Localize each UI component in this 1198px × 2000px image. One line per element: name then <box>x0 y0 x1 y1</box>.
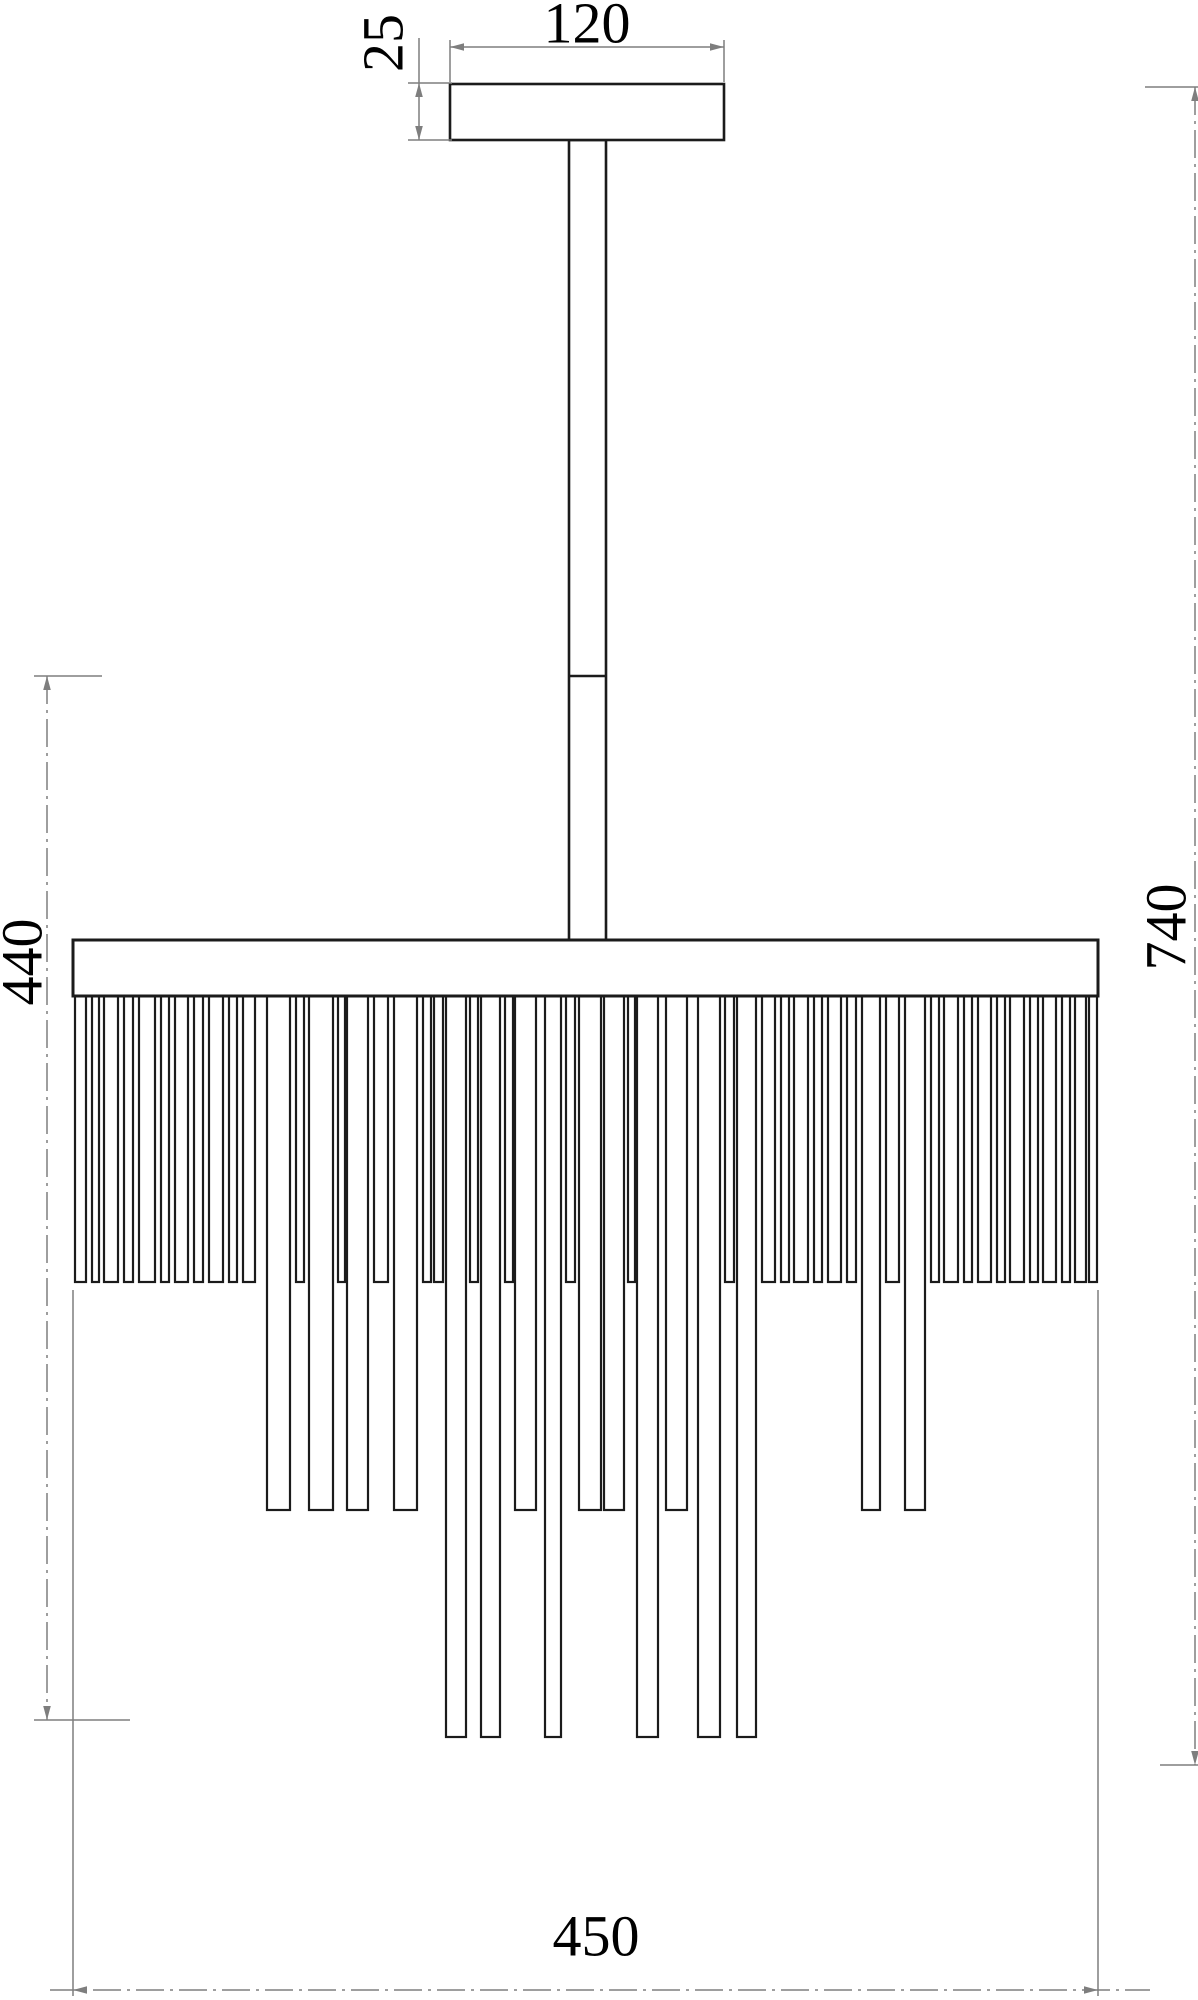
crystal-rod-tier1 <box>229 992 237 1282</box>
dim-25-arrow-1 <box>415 126 423 140</box>
crystal-rod-tier1 <box>296 992 304 1282</box>
dim-450-arrow-0 <box>73 1986 87 1994</box>
hanging-rod <box>569 140 606 940</box>
frame-plate <box>73 940 1098 996</box>
dim-440-arrow-0 <box>43 676 51 690</box>
dim-740-label: 740 <box>1134 884 1198 971</box>
crystal-rod-tier2 <box>579 992 601 1510</box>
crystal-rod-tier1 <box>781 992 789 1282</box>
dim-120-arrow-0 <box>450 43 464 51</box>
crystal-rod-tier1 <box>1062 992 1070 1282</box>
crystal-rod-tier1 <box>1089 992 1097 1282</box>
crystal-rod-tier1 <box>1075 992 1086 1282</box>
crystal-rod-tier1 <box>566 992 575 1282</box>
crystal-rod-tier2 <box>347 992 368 1510</box>
crystal-rod-tier1 <box>828 992 841 1282</box>
dim-25-arrow-0 <box>415 83 423 97</box>
dim-450-arrow-1 <box>1084 1986 1098 1994</box>
dim-25-label: 25 <box>351 14 416 72</box>
crystal-rod-tier3 <box>698 992 720 1737</box>
crystal-rod-tier1 <box>139 992 155 1282</box>
crystal-rod-tier2 <box>515 992 536 1510</box>
crystal-rod-tier1 <box>725 992 734 1282</box>
crystal-rod-tier1 <box>175 992 188 1282</box>
crystal-rod-tier1 <box>944 992 958 1282</box>
crystal-rod-tier1 <box>161 992 169 1282</box>
crystal-rod-tier3 <box>637 992 658 1737</box>
crystal-rod-tier1 <box>434 992 443 1282</box>
crystal-rod-tier1 <box>338 992 345 1282</box>
crystal-rod-tier1 <box>997 992 1005 1282</box>
crystal-rod-tier3 <box>545 992 561 1737</box>
crystal-rod-tier2 <box>267 992 290 1510</box>
crystal-rod-tier1 <box>124 992 133 1282</box>
crystal-rod-tier1 <box>104 992 118 1282</box>
crystal-rod-tier1 <box>75 992 86 1282</box>
crystal-rod-tier3 <box>446 992 466 1737</box>
crystal-rod-tier1 <box>209 992 223 1282</box>
crystal-rod-tier3 <box>737 992 756 1737</box>
crystal-rod-tier1 <box>814 992 822 1282</box>
crystal-rod-tier1 <box>964 992 972 1282</box>
crystal-rod-tier1 <box>886 992 899 1282</box>
crystal-rod-tier2 <box>604 992 624 1510</box>
crystal-rod-tier1 <box>194 992 203 1282</box>
chandelier-dimension-drawing: 12025740440450 <box>0 0 1198 2000</box>
dim-740-arrow-1 <box>1191 1751 1198 1765</box>
crystal-rod-tier2 <box>666 992 687 1510</box>
crystal-rod-tier1 <box>762 992 775 1282</box>
crystal-rod-tier1 <box>243 992 255 1282</box>
crystal-rod-tier1 <box>978 992 991 1282</box>
dim-120-label: 120 <box>544 0 631 56</box>
drawing-svg: 12025740440450 <box>0 0 1198 2000</box>
crystal-rod-tier1 <box>931 992 939 1282</box>
crystal-rod-tier2 <box>905 992 925 1510</box>
crystal-rod-tier1 <box>847 992 856 1282</box>
crystal-rod-tier2 <box>862 992 880 1510</box>
crystal-rod-tier1 <box>374 992 388 1282</box>
dim-440-label: 440 <box>0 919 55 1006</box>
crystal-rod-tier1 <box>505 992 513 1282</box>
crystal-rod-tier1 <box>628 992 635 1282</box>
dim-740-arrow-0 <box>1191 87 1198 101</box>
crystal-rod-tier1 <box>470 992 478 1282</box>
crystal-rod-tier1 <box>423 992 431 1282</box>
crystal-rod-tier2 <box>309 992 333 1510</box>
crystal-rod-tier1 <box>794 992 808 1282</box>
dim-450-label: 450 <box>553 1904 640 1969</box>
dim-120-arrow-1 <box>710 43 724 51</box>
dim-440-arrow-1 <box>43 1706 51 1720</box>
crystal-rod-tier3 <box>481 992 500 1737</box>
crystal-rod-tier1 <box>92 992 99 1282</box>
crystal-rod-tier2 <box>394 992 417 1510</box>
crystal-rod-tier1 <box>1043 992 1056 1282</box>
crystal-rod-tier1 <box>1030 992 1038 1282</box>
ceiling-canopy <box>450 84 724 140</box>
crystal-rod-tier1 <box>1010 992 1024 1282</box>
